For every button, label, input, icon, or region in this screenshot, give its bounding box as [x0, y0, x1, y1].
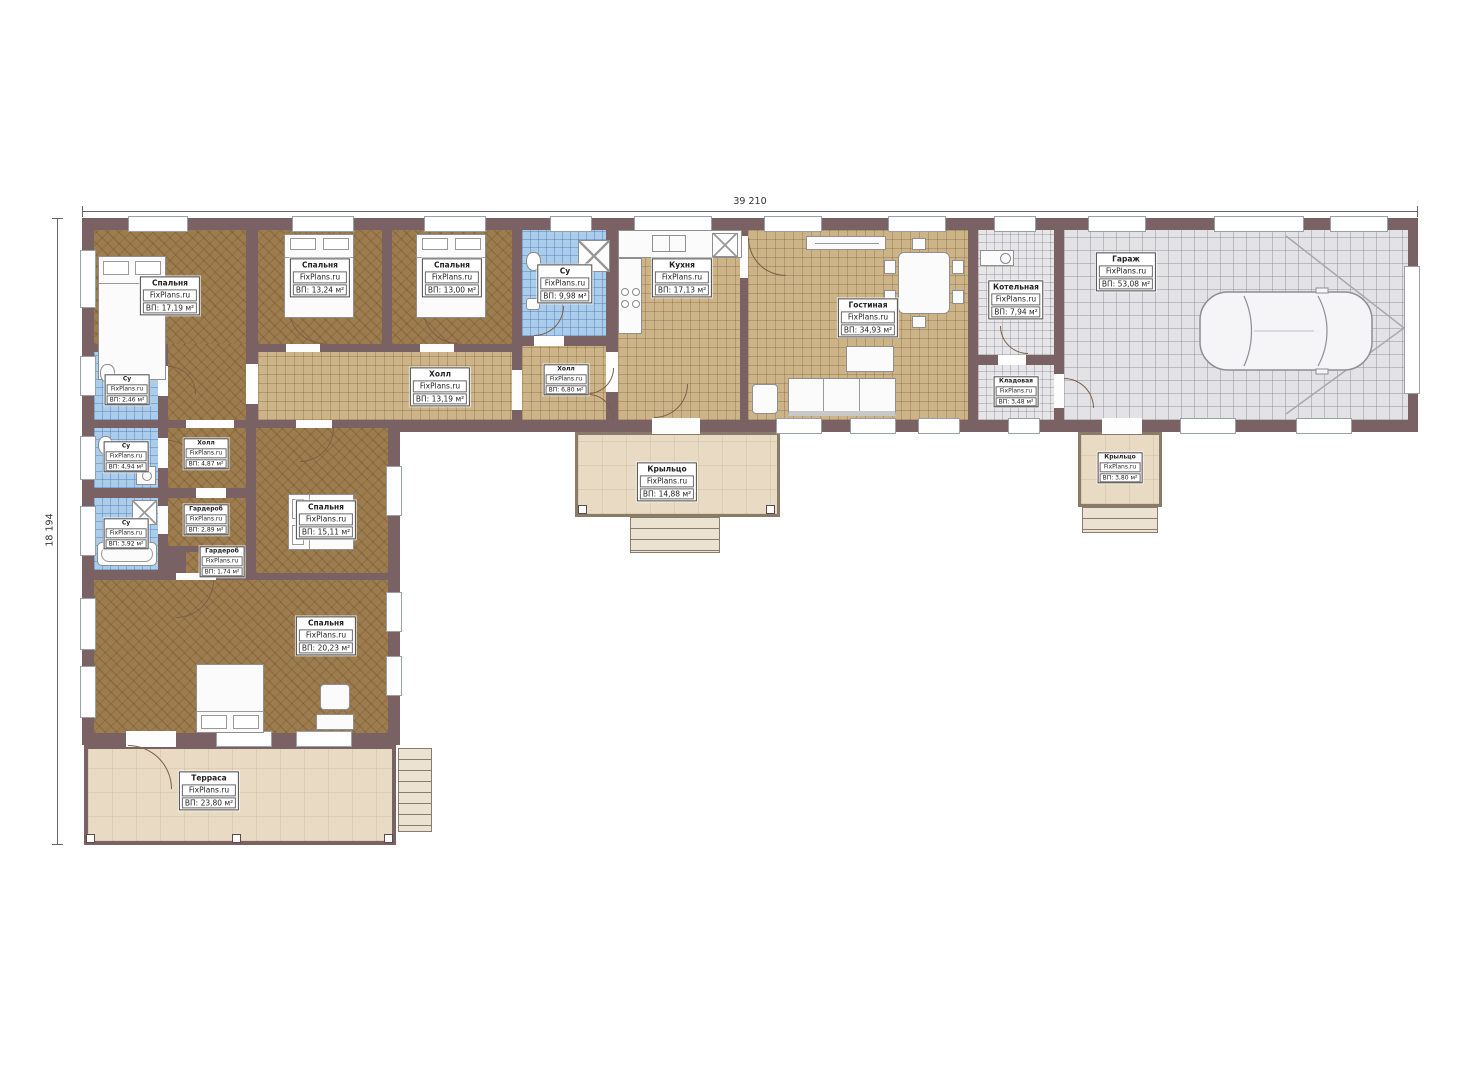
dimension-line-top [82, 211, 1418, 212]
room-name: Терраса [182, 773, 236, 783]
chair [884, 260, 896, 274]
room-hall-main-floor [258, 352, 512, 420]
room-area: ВП: 17,13 м² [655, 284, 709, 296]
room-area: ВП: 13,19 м² [413, 393, 467, 405]
room-area: ВП: 15,11 м² [299, 526, 353, 538]
stove-burner [621, 288, 629, 296]
room-area: ВП: 3,48 м² [996, 397, 1037, 407]
brand-watermark: FixPlans.ru [425, 271, 479, 283]
room-label-terrace: Терраса FixPlans.ru ВП: 23,80 м² [179, 771, 239, 810]
brand-watermark: FixPlans.ru [413, 380, 467, 392]
window [80, 666, 96, 718]
chair [912, 238, 926, 250]
stove-burner [632, 288, 640, 296]
room-label-wardrobe2: Гардероб FixPlans.ru ВП: 1,74 м² [200, 546, 245, 577]
dim-tick [52, 218, 63, 219]
room-name: Холл [186, 439, 227, 447]
brand-watermark: FixPlans.ru [299, 513, 353, 525]
chair [952, 260, 964, 274]
room-label-hall3: Холл FixPlans.ru ВП: 4,87 м² [184, 438, 229, 469]
floor-plan: 39 210 18 194 [0, 0, 1474, 1080]
dining-table [898, 252, 950, 314]
dimension-left-value: 18 194 [45, 513, 56, 546]
door-opening [246, 364, 258, 404]
window [296, 731, 352, 747]
bed [98, 256, 166, 380]
window [80, 356, 96, 396]
room-label-bedroom1: Спальня FixPlans.ru ВП: 17,19 м² [140, 276, 200, 315]
armchair [320, 684, 350, 710]
room-label-bedroom4: Спальня FixPlans.ru ВП: 15,11 м² [296, 500, 356, 539]
door-opening [512, 370, 522, 410]
sofa [788, 378, 896, 416]
room-area: ВП: 2,46 м² [107, 395, 148, 405]
chair [912, 316, 926, 328]
dimension-line-left [57, 218, 58, 845]
window [80, 250, 96, 308]
room-label-bedroom3: Спальня FixPlans.ru ВП: 13,00 м² [422, 258, 482, 297]
room-area: ВП: 1,74 м² [202, 567, 243, 577]
room-area: ВП: 23,80 м² [182, 797, 236, 809]
window [1008, 418, 1040, 434]
window [424, 216, 486, 232]
room-label-su1: Су FixPlans.ru ВП: 2,46 м² [105, 374, 150, 405]
room-area: ВП: 17,19 м² [143, 302, 197, 314]
dimension-top-value: 39 210 [733, 196, 766, 207]
room-area: ВП: 9,98 м² [540, 290, 589, 302]
room-name: Су [106, 442, 147, 450]
brand-watermark: FixPlans.ru [299, 629, 353, 641]
door-opening [286, 344, 320, 352]
brand-watermark: FixPlans.ru [546, 374, 587, 384]
stove-burner [621, 300, 629, 308]
window [386, 656, 402, 696]
brand-watermark: FixPlans.ru [991, 293, 1040, 305]
room-area: ВП: 53,08 м² [1099, 278, 1153, 290]
room-name: Спальня [299, 502, 353, 512]
armchair [752, 384, 778, 414]
brand-watermark: FixPlans.ru [655, 271, 709, 283]
brand-watermark: FixPlans.ru [1099, 265, 1153, 277]
kitchen-counter [618, 258, 642, 334]
room-area: ВП: 7,94 м² [991, 306, 1040, 318]
back-door-opening [1102, 418, 1142, 434]
room-name: Спальня [143, 278, 197, 288]
door-opening [186, 420, 234, 428]
room-name: Крыльцо [640, 464, 694, 474]
room-label-boiler: Котельная FixPlans.ru ВП: 7,94 м² [988, 280, 1043, 319]
window [1180, 418, 1236, 434]
window [386, 466, 402, 516]
dim-tick [52, 844, 63, 845]
room-name: Гостиная [841, 300, 895, 310]
room-area: ВП: 13,24 м² [293, 284, 347, 296]
brand-watermark: FixPlans.ru [540, 277, 589, 289]
room-name: Су [106, 519, 147, 527]
room-name: Су [107, 375, 148, 383]
room-name: Спальня [293, 260, 347, 270]
door-opening [296, 420, 332, 428]
window [850, 418, 896, 434]
brand-watermark: FixPlans.ru [293, 271, 347, 283]
room-name: Су [540, 266, 589, 276]
window [128, 216, 188, 232]
bed [196, 664, 264, 733]
porch1-stairs [630, 517, 720, 553]
room-label-kitchen: Кухня FixPlans.ru ВП: 17,13 м² [652, 258, 712, 297]
door-opening [158, 506, 168, 534]
door-opening [1054, 374, 1064, 408]
window [386, 592, 402, 632]
brand-watermark: FixPlans.ru [1100, 462, 1141, 472]
room-label-hall-main: Холл FixPlans.ru ВП: 13,19 м² [410, 367, 470, 406]
brand-watermark: FixPlans.ru [186, 448, 227, 458]
room-name: Спальня [299, 618, 353, 628]
brand-watermark: FixPlans.ru [841, 311, 895, 323]
room-area: ВП: 2,89 м² [186, 525, 227, 535]
chair [952, 290, 964, 304]
room-area: ВП: 14,88 м² [640, 488, 694, 500]
window [918, 418, 960, 434]
window [216, 731, 272, 747]
room-name: Кухня [655, 260, 709, 270]
brand-watermark: FixPlans.ru [182, 784, 236, 796]
room-name: Крыльцо [1100, 453, 1141, 461]
terrace-post [86, 834, 95, 843]
entry-door-opening [652, 418, 700, 434]
window [292, 216, 354, 232]
window [888, 216, 946, 232]
room-label-storage: Кладовая FixPlans.ru ВП: 3,48 м² [994, 376, 1039, 407]
room-name: Гараж [1099, 254, 1153, 264]
room-label-living: Гостиная FixPlans.ru ВП: 34,93 м² [838, 298, 898, 337]
door-opening [534, 336, 564, 346]
window [80, 506, 96, 556]
room-label-bedroom5: Спальня FixPlans.ru ВП: 20,23 м² [296, 616, 356, 655]
room-name: Котельная [991, 282, 1040, 292]
porch1-post [578, 505, 587, 514]
terrace-post [232, 834, 241, 843]
brand-watermark: FixPlans.ru [106, 528, 147, 538]
stove-burner [632, 300, 640, 308]
room-area: ВП: 13,00 м² [425, 284, 479, 296]
room-name: Гардероб [186, 505, 227, 513]
room-name: Спальня [425, 260, 479, 270]
porch2-stairs [1082, 507, 1158, 533]
brand-watermark: FixPlans.ru [202, 556, 243, 566]
room-label-bedroom2: Спальня FixPlans.ru ВП: 13,24 м² [290, 258, 350, 297]
room-label-su4: Су FixPlans.ru ВП: 3,92 м² [104, 518, 149, 549]
brand-watermark: FixPlans.ru [143, 289, 197, 301]
room-name: Холл [413, 369, 467, 379]
room-area: ВП: 3,92 м² [106, 539, 147, 549]
window [764, 216, 822, 232]
dim-tick [1417, 206, 1418, 217]
dim-tick [82, 206, 83, 217]
porch1-post [766, 505, 775, 514]
room-area: ВП: 4,94 м² [106, 462, 147, 472]
tv-console [806, 236, 886, 250]
window [1296, 418, 1352, 434]
brand-watermark: FixPlans.ru [106, 451, 147, 461]
door-opening [420, 344, 454, 352]
room-area: ВП: 34,93 м² [841, 324, 895, 336]
terrace-stairs [398, 748, 432, 832]
room-label-garage: Гараж FixPlans.ru ВП: 53,08 м² [1096, 252, 1156, 291]
window [776, 418, 822, 434]
room-name: Кладовая [996, 377, 1037, 385]
brand-watermark: FixPlans.ru [640, 475, 694, 487]
room-area: ВП: 20,23 м² [299, 642, 353, 654]
window [80, 436, 96, 480]
door-opening [998, 355, 1026, 365]
side-table [316, 714, 354, 730]
room-label-su2: Су FixPlans.ru ВП: 9,98 м² [537, 264, 592, 303]
room-area: ВП: 6,80 м² [546, 385, 587, 395]
room-label-hall2: Холл FixPlans.ru ВП: 6,80 м² [544, 364, 589, 395]
room-name: Гардероб [202, 547, 243, 555]
room-area: ВП: 3,80 м² [1100, 473, 1141, 483]
room-label-porch1: Крыльцо FixPlans.ru ВП: 14,88 м² [637, 462, 697, 501]
window [80, 598, 96, 650]
door-opening [196, 488, 226, 498]
terrace-post [384, 834, 393, 843]
fridge [712, 233, 738, 257]
room-label-wardrobe1: Гардероб FixPlans.ru ВП: 2,89 м² [184, 504, 229, 535]
car-icon [1200, 288, 1372, 374]
boiler-unit [980, 250, 1014, 266]
room-label-su3: Су FixPlans.ru ВП: 4,94 м² [104, 441, 149, 472]
room-label-porch2: Крыльцо FixPlans.ru ВП: 3,80 м² [1098, 452, 1143, 483]
kitchen-sink [652, 235, 686, 252]
window [994, 216, 1036, 232]
door-opening [158, 438, 168, 468]
coffee-table [846, 346, 894, 372]
room-name: Холл [546, 365, 587, 373]
window [550, 216, 592, 232]
brand-watermark: FixPlans.ru [996, 386, 1037, 396]
room-area: ВП: 4,87 м² [186, 459, 227, 469]
brand-watermark: FixPlans.ru [186, 514, 227, 524]
brand-watermark: FixPlans.ru [107, 384, 148, 394]
